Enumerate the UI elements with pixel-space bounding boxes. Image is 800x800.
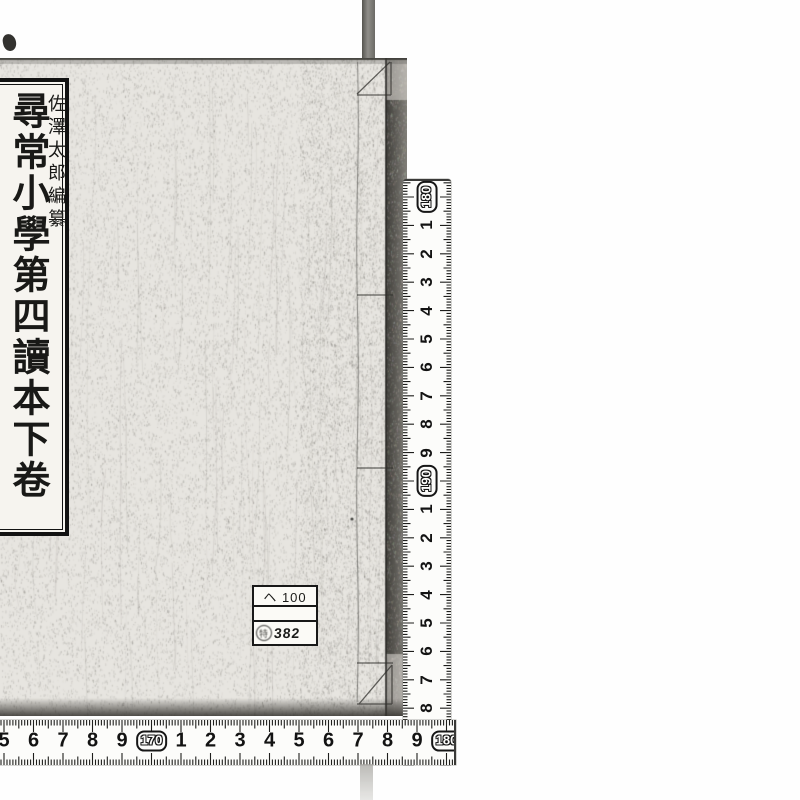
ruler-number: 2 — [417, 249, 437, 258]
ruler-number: 2 — [205, 730, 216, 753]
call-number-line2 — [254, 607, 316, 622]
book-title-column: 尋常小學第四讀本下卷 — [0, 91, 46, 527]
ruler-number: 2 — [417, 533, 437, 542]
ruler-number: 5 — [293, 730, 304, 753]
ink-mark — [1, 33, 17, 52]
ruler-badge: 190 — [417, 465, 438, 497]
ruler-number: 6 — [323, 730, 334, 753]
ruler-number: 5 — [417, 618, 437, 627]
ruler-number: 5 — [0, 730, 10, 753]
ruler-number: 5 — [417, 334, 437, 343]
book-title-text: 尋常小學第四讀本 — [6, 91, 48, 419]
ruler-number: 8 — [382, 730, 393, 753]
ruler-number: 8 — [87, 730, 98, 753]
ruler-number: 9 — [116, 730, 127, 753]
ruler-number: 7 — [417, 391, 437, 400]
call-number-label: ヘ 100 特 382 — [252, 585, 318, 646]
ruler-number: 6 — [417, 363, 437, 372]
ruler-badge: 170 — [136, 731, 168, 752]
ruler-number: 8 — [417, 419, 437, 428]
ruler-number: 7 — [417, 675, 437, 684]
ruler-number: 6 — [417, 647, 437, 656]
ruler-number: 3 — [417, 561, 437, 570]
ruler-number: 8 — [417, 703, 437, 712]
ruler-number: 1 — [417, 505, 437, 514]
scanned-page: 尋常小學第四讀本下卷 佐澤太郎編纂 ヘ 100 特 382 1801234567… — [0, 0, 800, 800]
ruler-number: 3 — [234, 730, 245, 753]
ruler-number: 7 — [57, 730, 68, 753]
book-cover: 尋常小學第四讀本下卷 佐澤太郎編纂 — [0, 58, 407, 716]
ruler-badge: 180 — [431, 731, 456, 752]
ruler-number: 9 — [417, 448, 437, 457]
call-number-line1: ヘ 100 — [254, 587, 316, 607]
ruler-number: 4 — [417, 590, 437, 599]
title-slip-inner-border: 尋常小學第四讀本下卷 佐澤太郎編纂 — [0, 84, 63, 530]
editor-column: 佐澤太郎編纂 — [45, 94, 65, 324]
title-slip-label: 尋常小學第四讀本下卷 佐澤太郎編纂 — [0, 78, 69, 536]
hanging-string-top — [362, 0, 375, 59]
ruler-number: 1 — [175, 730, 186, 753]
ruler-number: 4 — [264, 730, 275, 753]
ruler-badge: 180 — [417, 181, 438, 213]
call-number-line3: 特 382 — [254, 622, 316, 644]
ruler-number: 7 — [352, 730, 363, 753]
ruler-number: 6 — [28, 730, 39, 753]
hanging-string-bottom — [360, 764, 373, 800]
ruler-number: 3 — [417, 277, 437, 286]
vertical-tape-measure: 180123456789190123456789 — [403, 179, 451, 764]
volume-text: 下卷 — [6, 419, 48, 501]
ruler-number: 1 — [417, 221, 437, 230]
ruler-number: 9 — [411, 730, 422, 753]
call-number-value: 382 — [273, 625, 301, 641]
circular-stamp-icon: 特 — [256, 625, 272, 641]
horizontal-tape-measure: 56789170123456789180 — [0, 720, 456, 765]
ruler-number: 4 — [417, 306, 437, 315]
